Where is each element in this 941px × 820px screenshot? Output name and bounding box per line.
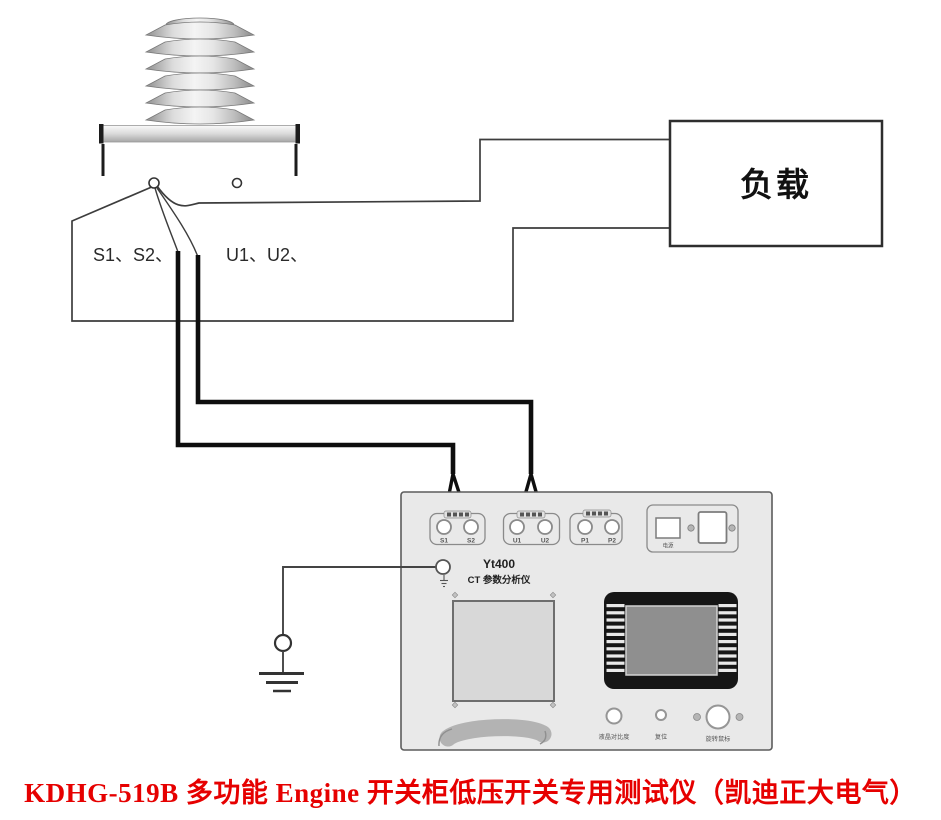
power-switch (656, 518, 680, 538)
mouse-screw-right (736, 714, 743, 721)
terminal-u2 (538, 520, 552, 534)
wiring-diagram: S1、S2、 U1、U2、 负载 S1 S2 (0, 0, 941, 820)
wire-primary-top (157, 140, 670, 206)
primary-loop-wires (72, 140, 670, 322)
insulator-disc (146, 39, 254, 56)
current-transformer-bushing (99, 18, 300, 176)
insulator-disc (146, 56, 254, 73)
diagram-canvas: S1、S2、 U1、U2、 负载 S1 S2 (0, 0, 941, 820)
load-label: 负载 (740, 167, 812, 204)
ct-flange (101, 126, 298, 143)
display-assembly (604, 592, 738, 689)
device-name: CT 参数分析仪 (468, 574, 531, 586)
reset-label: 复位 (655, 733, 667, 741)
panel-ground-terminal (436, 560, 450, 574)
rotary-mouse-knob (707, 706, 730, 729)
socket-screw-left (688, 525, 694, 531)
analyzer-front-panel: S1 S2 U1 U2 P1 P2 (401, 492, 772, 750)
socket-screw-right (729, 525, 735, 531)
insulator-disc (146, 107, 254, 124)
terminal-s2 (464, 520, 478, 534)
terminal-s1 (437, 520, 451, 534)
power-switch-label: 电源 (662, 542, 674, 550)
terminal-p1-label: P1 (581, 538, 589, 545)
terminal-u1 (510, 520, 524, 534)
keypad-panel (453, 601, 554, 701)
terminal-u2-label: U2 (541, 538, 550, 545)
reset-button (656, 710, 666, 720)
contrast-knob (607, 709, 622, 724)
ct-secondary-label: S1、S2、 (93, 245, 173, 265)
ct-flange-endcap-right (296, 124, 301, 144)
keypad-area (452, 592, 556, 708)
insulator-disc (146, 22, 254, 39)
load-box: 负载 (670, 121, 882, 246)
power-socket (699, 512, 727, 543)
device-model: Yt400 (483, 557, 515, 571)
terminal-s2-label: S2 (467, 538, 475, 545)
ct-terminal-left (149, 178, 159, 188)
diagram-caption: KDHG-519B 多功能 Engine 开关柜低压开关专用测试仪（凯迪正大电气… (0, 769, 941, 811)
ct-terminal-right (233, 179, 242, 188)
insulator-disc (146, 90, 254, 107)
ct-flange-endcap-left (99, 124, 104, 144)
mouse-screw-left (694, 714, 701, 721)
terminal-p2-label: P2 (608, 538, 616, 545)
lcd-screen (626, 606, 717, 675)
terminal-u1-label: U1 (513, 538, 522, 545)
cable-to-u-terminals (198, 255, 531, 474)
ct-primary-label: U1、U2、 (226, 245, 308, 265)
terminal-p1 (578, 520, 592, 534)
rotary-mouse-label: 旋转鼠标 (706, 735, 731, 743)
cable-to-s-terminals (178, 251, 453, 474)
terminal-s1-label: S1 (440, 538, 448, 545)
insulator-disc (146, 73, 254, 90)
ground-clamp (275, 635, 291, 651)
test-cables (178, 251, 544, 520)
contrast-label: 液晶对比度 (599, 733, 630, 741)
terminal-p2 (605, 520, 619, 534)
